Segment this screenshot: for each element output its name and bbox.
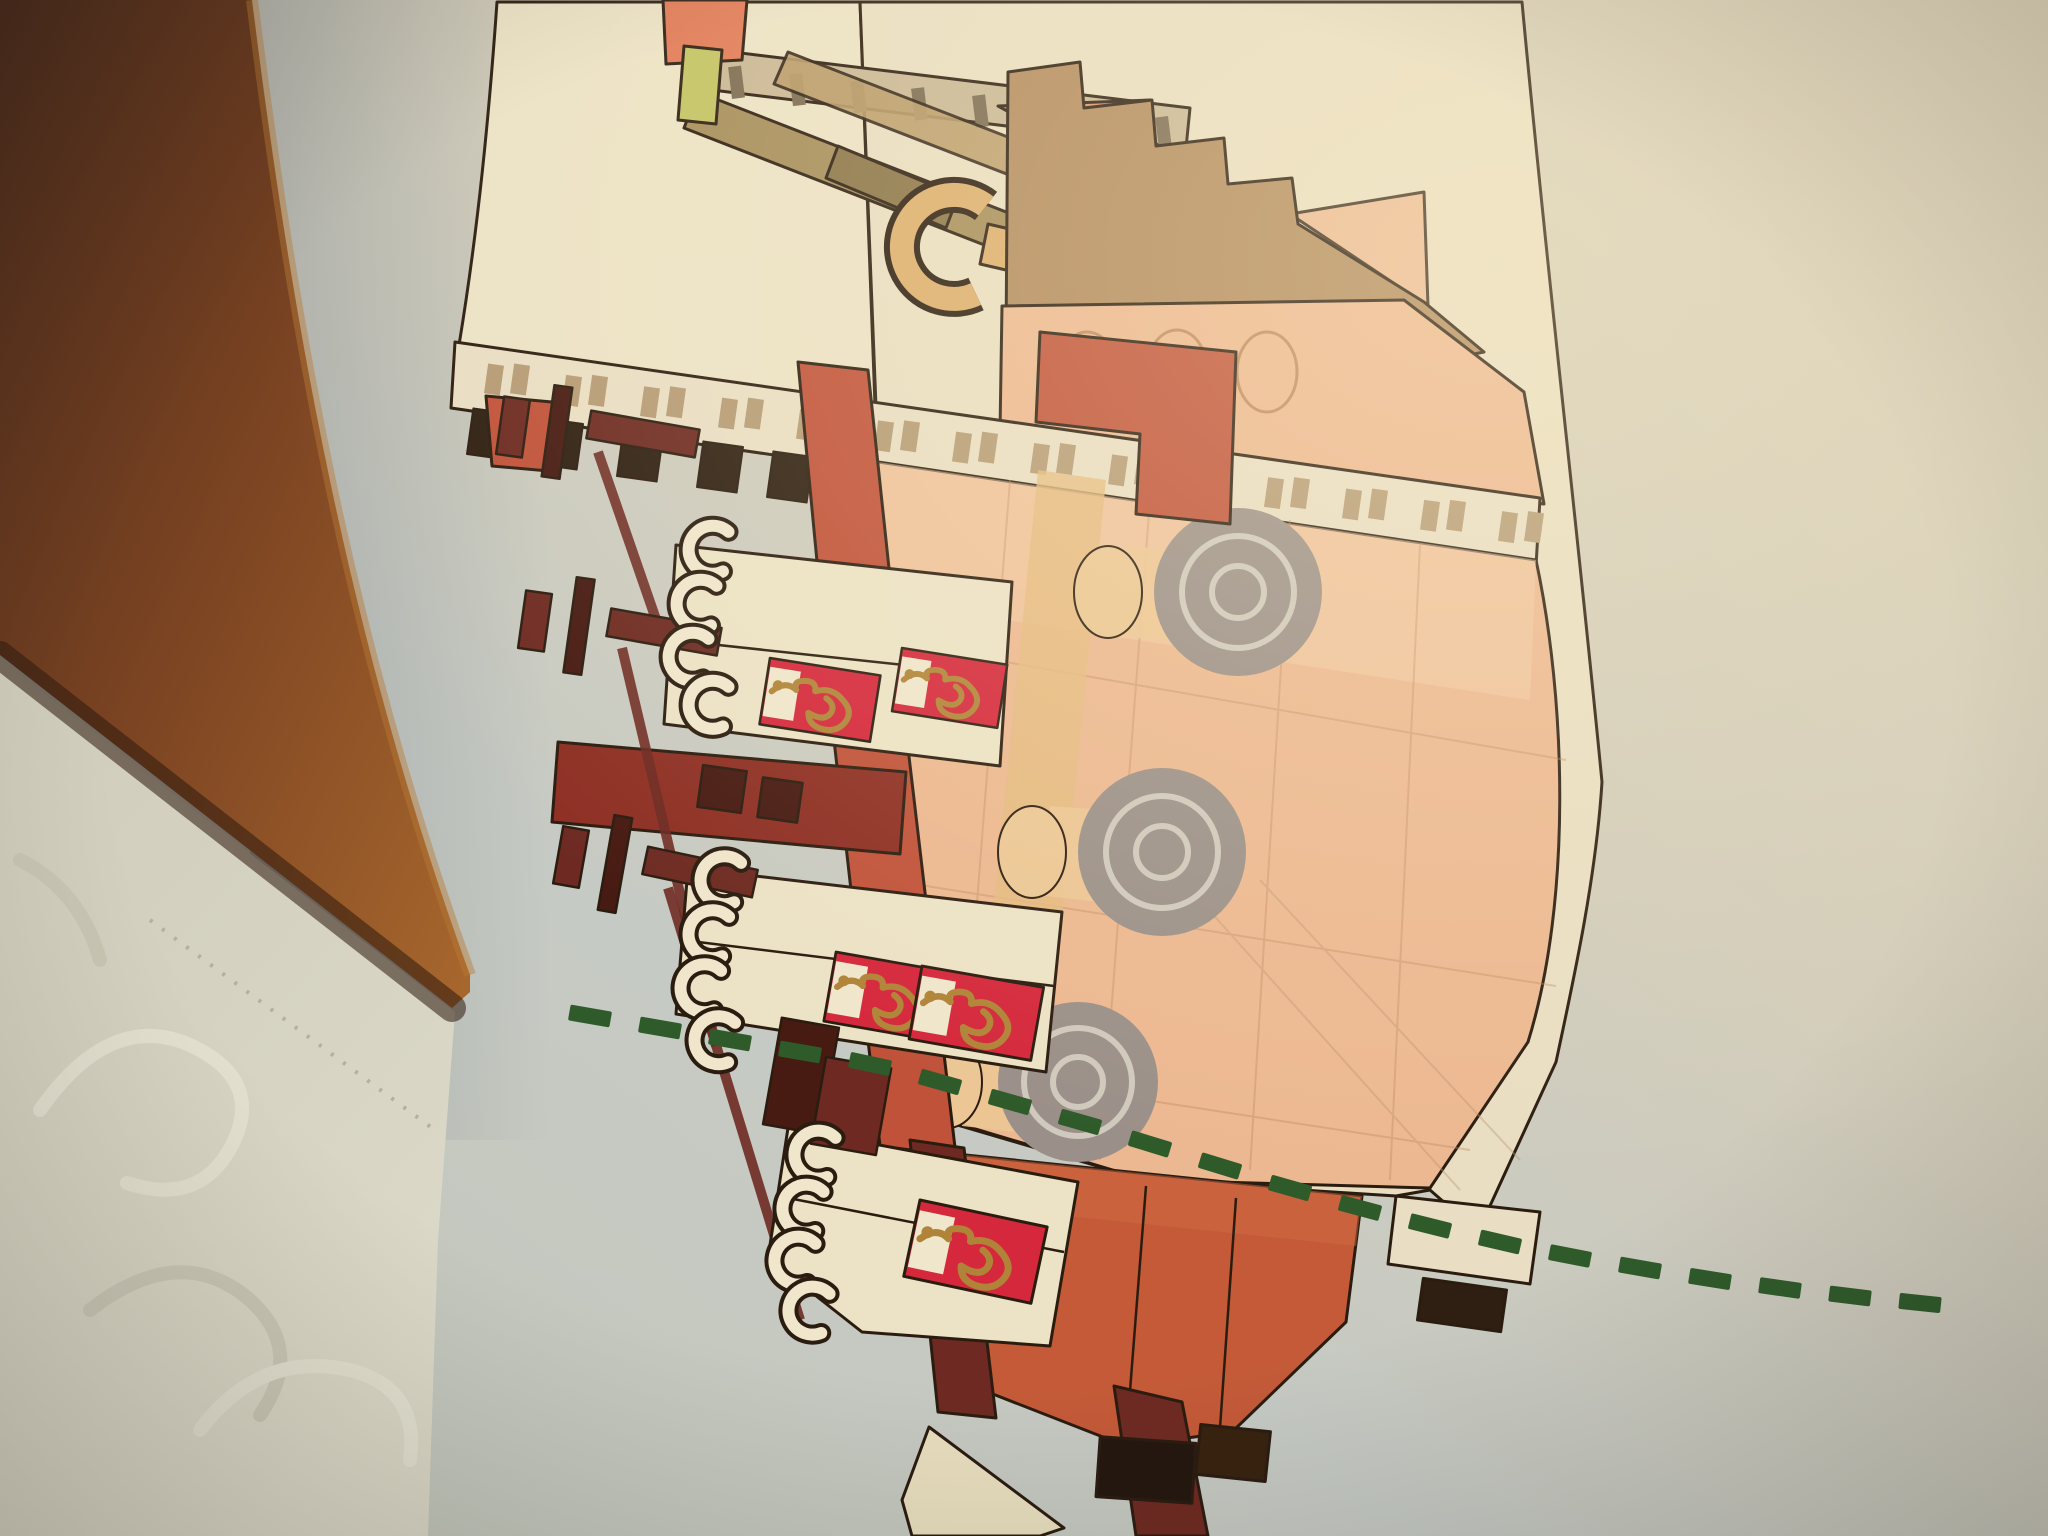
photo-of-instruction-page xyxy=(0,0,2048,1536)
vignette-overlay xyxy=(0,0,2048,1536)
scene-canvas xyxy=(0,0,2048,1536)
